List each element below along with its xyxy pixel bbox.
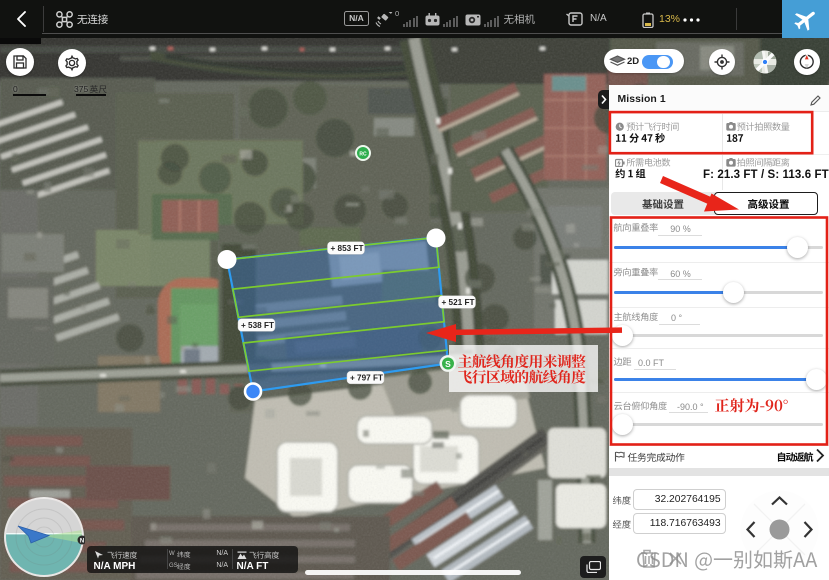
svg-text:+ 797 FT: + 797 FT xyxy=(350,373,383,382)
svg-text:+ 538 FT: + 538 FT xyxy=(241,321,274,330)
svg-text:+ 521 FT: + 521 FT xyxy=(442,298,475,307)
svg-text:RC: RC xyxy=(359,152,367,158)
svg-text:+ 853 FT: + 853 FT xyxy=(331,244,364,253)
svg-text:N: N xyxy=(80,539,84,545)
